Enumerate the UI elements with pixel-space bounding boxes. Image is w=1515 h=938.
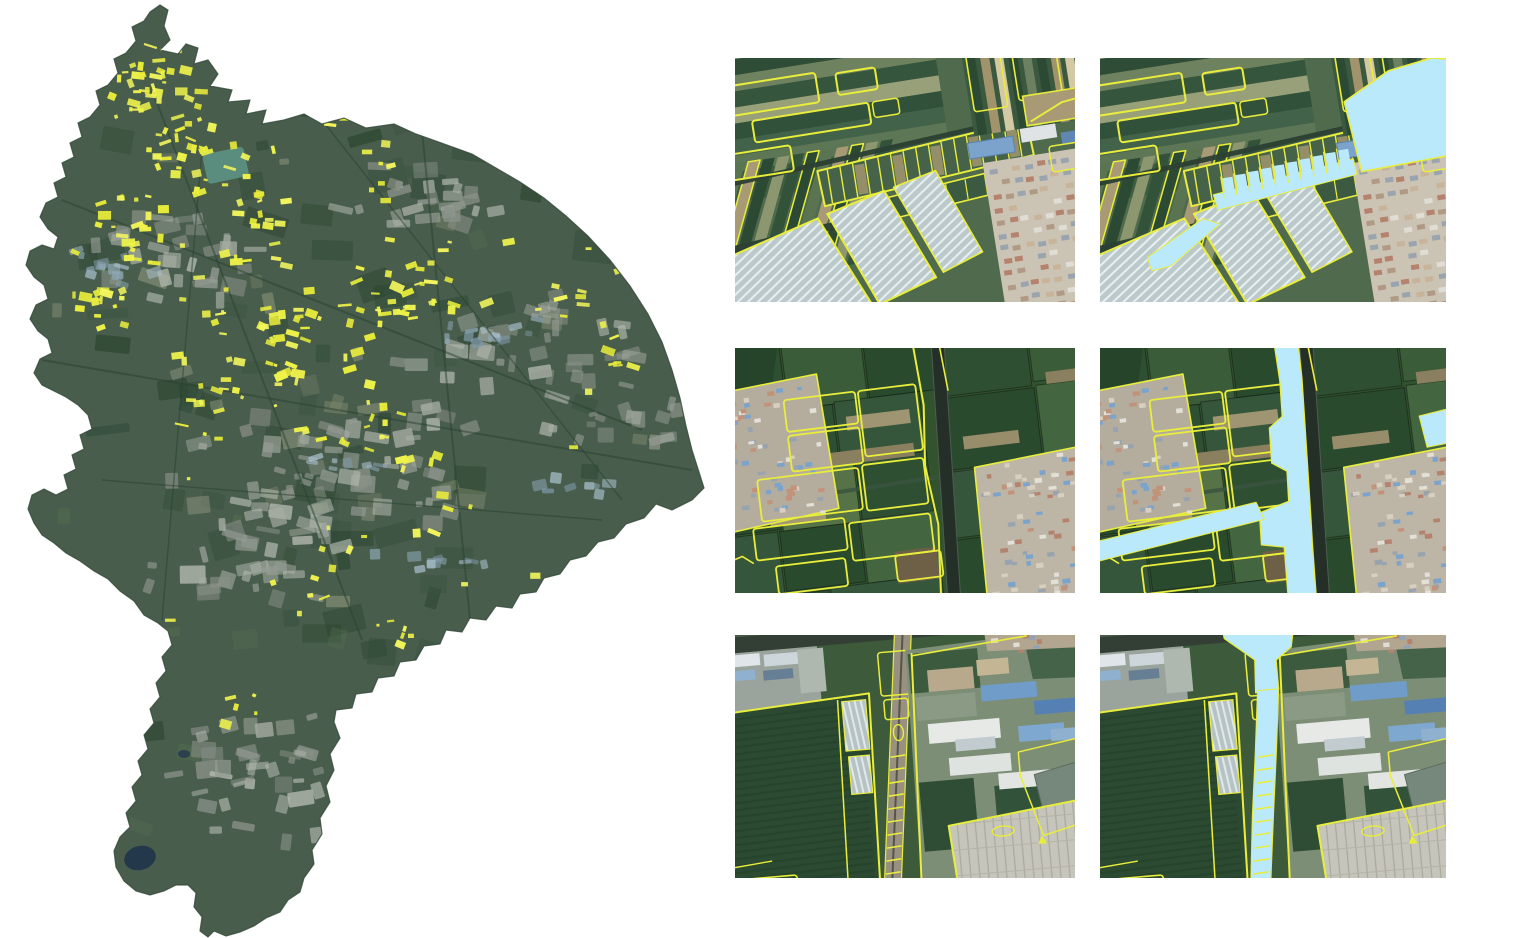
sample-2-fills (1100, 348, 1446, 593)
map-texture (2, 0, 712, 938)
sample-3-outlines (735, 635, 1075, 878)
sample-1-outlines (735, 58, 1075, 302)
figure-canvas (0, 0, 1515, 938)
sample-3-fills (1100, 635, 1446, 878)
sample-1-fills (1100, 58, 1446, 302)
scene-greenhouse-fields (735, 58, 1075, 302)
study-area-map (2, 0, 712, 938)
scene-field-quilt (735, 348, 1075, 593)
scene-canal-industry (1100, 635, 1446, 878)
scene-field-quilt (1100, 348, 1446, 593)
sample-2-outlines (735, 348, 1075, 593)
scene-greenhouse-fields (1100, 58, 1446, 302)
scene-canal-industry (735, 635, 1075, 878)
